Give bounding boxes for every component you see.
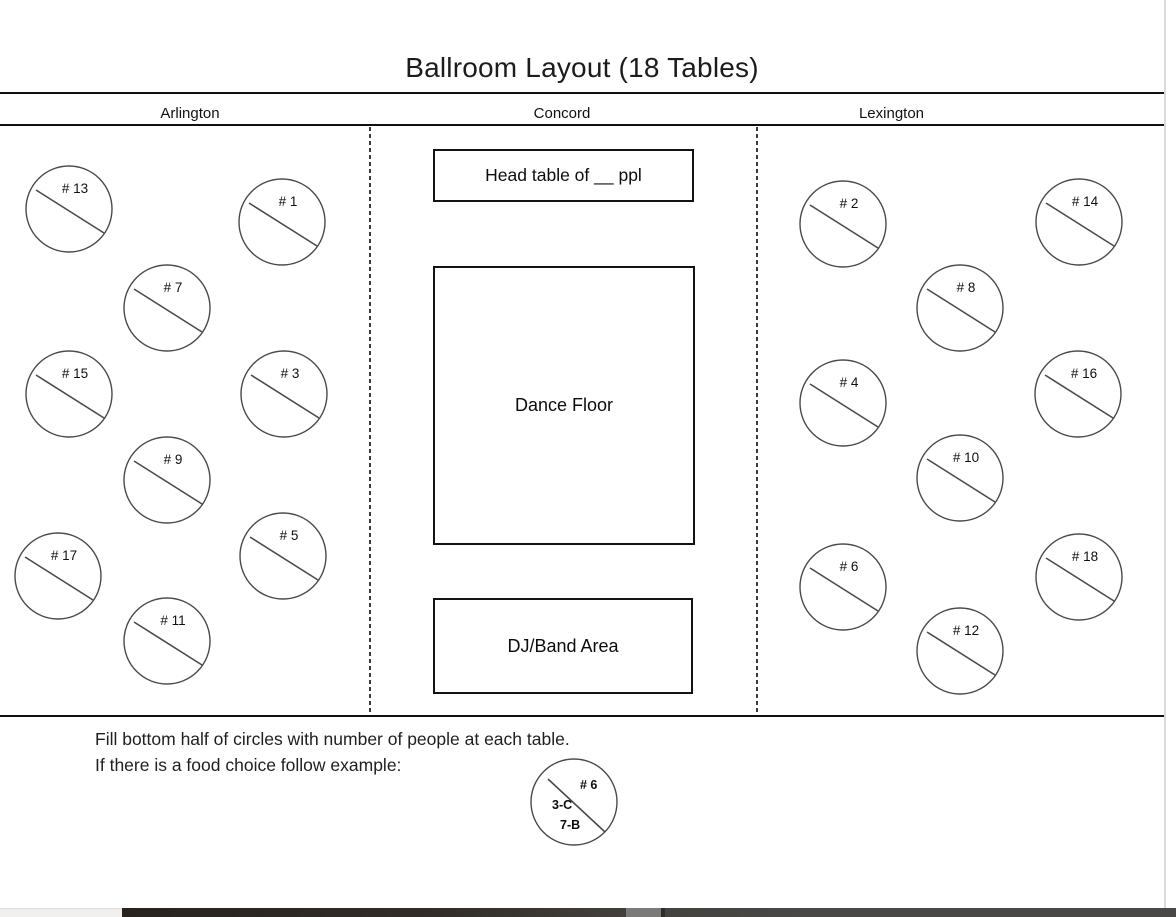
table-circle-6: # 6 — [799, 543, 887, 631]
table-outline — [799, 359, 887, 447]
dj-band-box: DJ/Band Area — [433, 598, 693, 694]
page-title: Ballroom Layout (18 Tables) — [0, 52, 1164, 84]
table-diagonal-line — [1046, 558, 1114, 601]
table-number-label: # 16 — [1040, 366, 1128, 381]
table-circle-18: # 18 — [1035, 533, 1123, 621]
head-table-box: Head table of __ ppl — [433, 149, 694, 202]
table-circle-13: # 13 — [25, 165, 113, 253]
table-number-label: # 4 — [805, 375, 893, 390]
table-outline — [1035, 178, 1123, 266]
table-circle-16: # 16 — [1034, 350, 1122, 438]
dance-floor-box: Dance Floor — [433, 266, 695, 545]
document-page: Ballroom Layout (18 Tables) Arlington Co… — [0, 0, 1176, 917]
table-outline — [238, 178, 326, 266]
table-number-label: # 18 — [1041, 549, 1129, 564]
example-table-circle: # 63-C7-B — [530, 758, 618, 846]
dance-floor-label: Dance Floor — [515, 395, 613, 416]
table-number-label: # 14 — [1041, 194, 1129, 209]
table-circle-1: # 1 — [238, 178, 326, 266]
table-circle-11: # 11 — [123, 597, 211, 685]
bottom-bar-light-segment — [0, 908, 122, 917]
table-outline — [1034, 350, 1122, 438]
table-diagonal-line — [25, 557, 93, 600]
table-number-label: # 15 — [31, 366, 119, 381]
table-diagonal-line — [134, 622, 202, 665]
table-outline — [916, 607, 1004, 695]
instructions-text: Fill bottom half of circles with number … — [95, 726, 570, 778]
table-circle-15: # 15 — [25, 350, 113, 438]
table-outline — [916, 434, 1004, 522]
section-label-concord: Concord — [380, 105, 744, 122]
table-circle-2: # 2 — [799, 180, 887, 268]
table-diagonal-line — [810, 384, 878, 427]
table-number-label: # 8 — [922, 280, 1010, 295]
table-outline — [25, 165, 113, 253]
table-diagonal-line — [1046, 203, 1114, 246]
table-circle-14: # 14 — [1035, 178, 1123, 266]
table-diagonal-line — [134, 289, 202, 332]
bottom-scrollbar-notch — [661, 908, 665, 917]
table-outline — [240, 350, 328, 438]
example-table-outline — [530, 758, 618, 846]
table-diagonal-line — [1045, 375, 1113, 418]
table-circle-10: # 10 — [916, 434, 1004, 522]
section-divider-left — [369, 127, 371, 716]
table-number-label: # 2 — [805, 196, 893, 211]
table-diagonal-line — [249, 203, 317, 246]
table-diagonal-line — [927, 459, 995, 502]
table-number-label: # 9 — [129, 452, 217, 467]
table-outline — [1035, 533, 1123, 621]
table-outline — [799, 543, 887, 631]
table-diagonal-line — [134, 461, 202, 504]
table-outline — [123, 264, 211, 352]
table-diagonal-line — [810, 205, 878, 248]
table-diagonal-line — [36, 190, 104, 233]
table-circle-12: # 12 — [916, 607, 1004, 695]
bottom-bar — [0, 908, 1176, 917]
table-outline — [25, 350, 113, 438]
table-diagonal-line — [251, 375, 319, 418]
table-diagonal-line — [927, 289, 995, 332]
table-circle-17: # 17 — [14, 532, 102, 620]
page-edge-line — [1164, 0, 1166, 908]
header-divider-line — [0, 124, 1164, 126]
table-number-label: # 13 — [31, 181, 119, 196]
table-diagonal-line — [36, 375, 104, 418]
table-outline — [123, 597, 211, 685]
table-number-label: # 10 — [922, 450, 1010, 465]
table-number-label: # 17 — [20, 548, 108, 563]
table-circle-8: # 8 — [916, 264, 1004, 352]
table-number-label: # 7 — [129, 280, 217, 295]
table-diagonal-line — [810, 568, 878, 611]
footer-divider-line — [0, 715, 1164, 717]
table-outline — [916, 264, 1004, 352]
table-number-label: # 5 — [245, 528, 333, 543]
table-outline — [14, 532, 102, 620]
table-diagonal-line — [927, 632, 995, 675]
table-number-label: # 3 — [246, 366, 334, 381]
table-number-label: # 1 — [244, 194, 332, 209]
table-circle-3: # 3 — [240, 350, 328, 438]
head-table-label: Head table of __ ppl — [485, 165, 642, 186]
section-label-arlington: Arlington — [0, 105, 380, 122]
table-circle-9: # 9 — [123, 436, 211, 524]
table-circle-5: # 5 — [239, 512, 327, 600]
table-number-label: # 6 — [805, 559, 893, 574]
instructions-line-2: If there is a food choice follow example… — [95, 752, 570, 778]
table-circle-7: # 7 — [123, 264, 211, 352]
title-divider-line — [0, 92, 1164, 94]
section-label-lexington: Lexington — [744, 105, 1039, 122]
section-divider-right — [756, 127, 758, 716]
table-number-label: # 12 — [922, 623, 1010, 638]
table-number-label: # 11 — [129, 613, 217, 628]
example-food-choice-1: 3-C — [552, 798, 572, 812]
table-outline — [123, 436, 211, 524]
dj-band-label: DJ/Band Area — [507, 636, 618, 657]
table-circle-4: # 4 — [799, 359, 887, 447]
table-outline — [239, 512, 327, 600]
bottom-scrollbar-thumb[interactable] — [626, 908, 661, 917]
instructions-line-1: Fill bottom half of circles with number … — [95, 726, 570, 752]
table-diagonal-line — [250, 537, 318, 580]
table-outline — [799, 180, 887, 268]
example-food-choice-2: 7-B — [560, 818, 580, 832]
example-table-number: # 6 — [580, 778, 597, 792]
